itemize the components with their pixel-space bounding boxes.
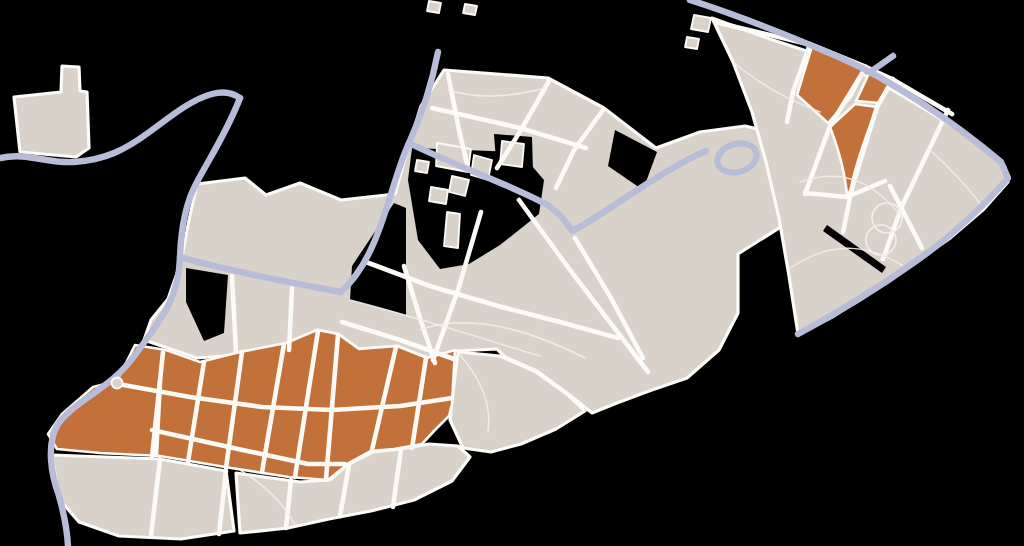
building-footprint [449, 176, 469, 196]
block-top-left-building [14, 66, 89, 157]
building-footprint [429, 187, 448, 204]
waterway-stub [873, 56, 893, 70]
building-footprint [685, 37, 699, 49]
building-footprint [463, 4, 477, 15]
street [289, 288, 292, 350]
block-southwest-gray-left [52, 455, 234, 539]
building-footprint [691, 15, 711, 32]
roundabout [112, 378, 123, 389]
building-footprint [427, 1, 441, 13]
map-viewport[interactable] [0, 0, 1024, 546]
city-map-canvas[interactable] [0, 0, 1024, 546]
mini-roundabout [112, 378, 123, 389]
building-footprint-pill [444, 212, 460, 248]
building-footprint [415, 160, 429, 173]
